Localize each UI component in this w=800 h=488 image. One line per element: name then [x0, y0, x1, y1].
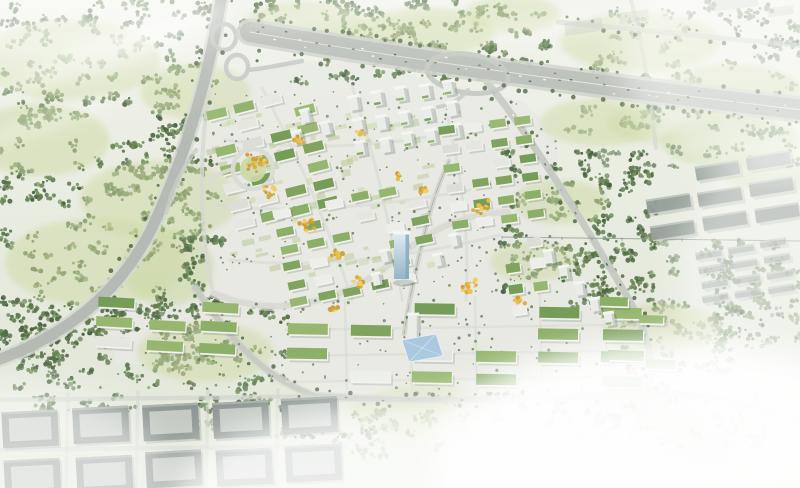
masterplan-aerial-rendering — [0, 0, 800, 488]
masterplan-render-canvas — [0, 0, 800, 488]
